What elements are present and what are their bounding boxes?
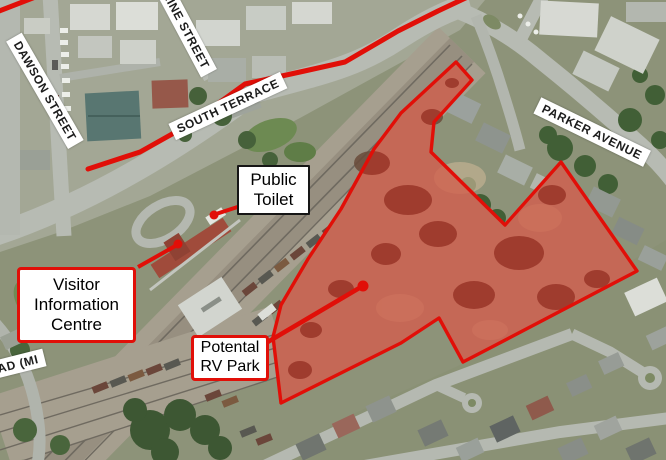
callout-public-toilet: Public Toilet xyxy=(237,165,310,215)
annotated-aerial-map: DAWSON STREET RINE STREET SOUTH TERRACE … xyxy=(0,0,666,460)
rv-park-pointer-dot xyxy=(358,281,369,292)
public-toilet-pointer-dot xyxy=(210,211,219,220)
visitor-centre-pointer-dot xyxy=(174,240,183,249)
callout-visitor-information-centre: Visitor Information Centre xyxy=(17,267,136,343)
callout-potential-rv-park: Potental RV Park xyxy=(191,335,269,381)
aerial-photo xyxy=(0,0,666,460)
